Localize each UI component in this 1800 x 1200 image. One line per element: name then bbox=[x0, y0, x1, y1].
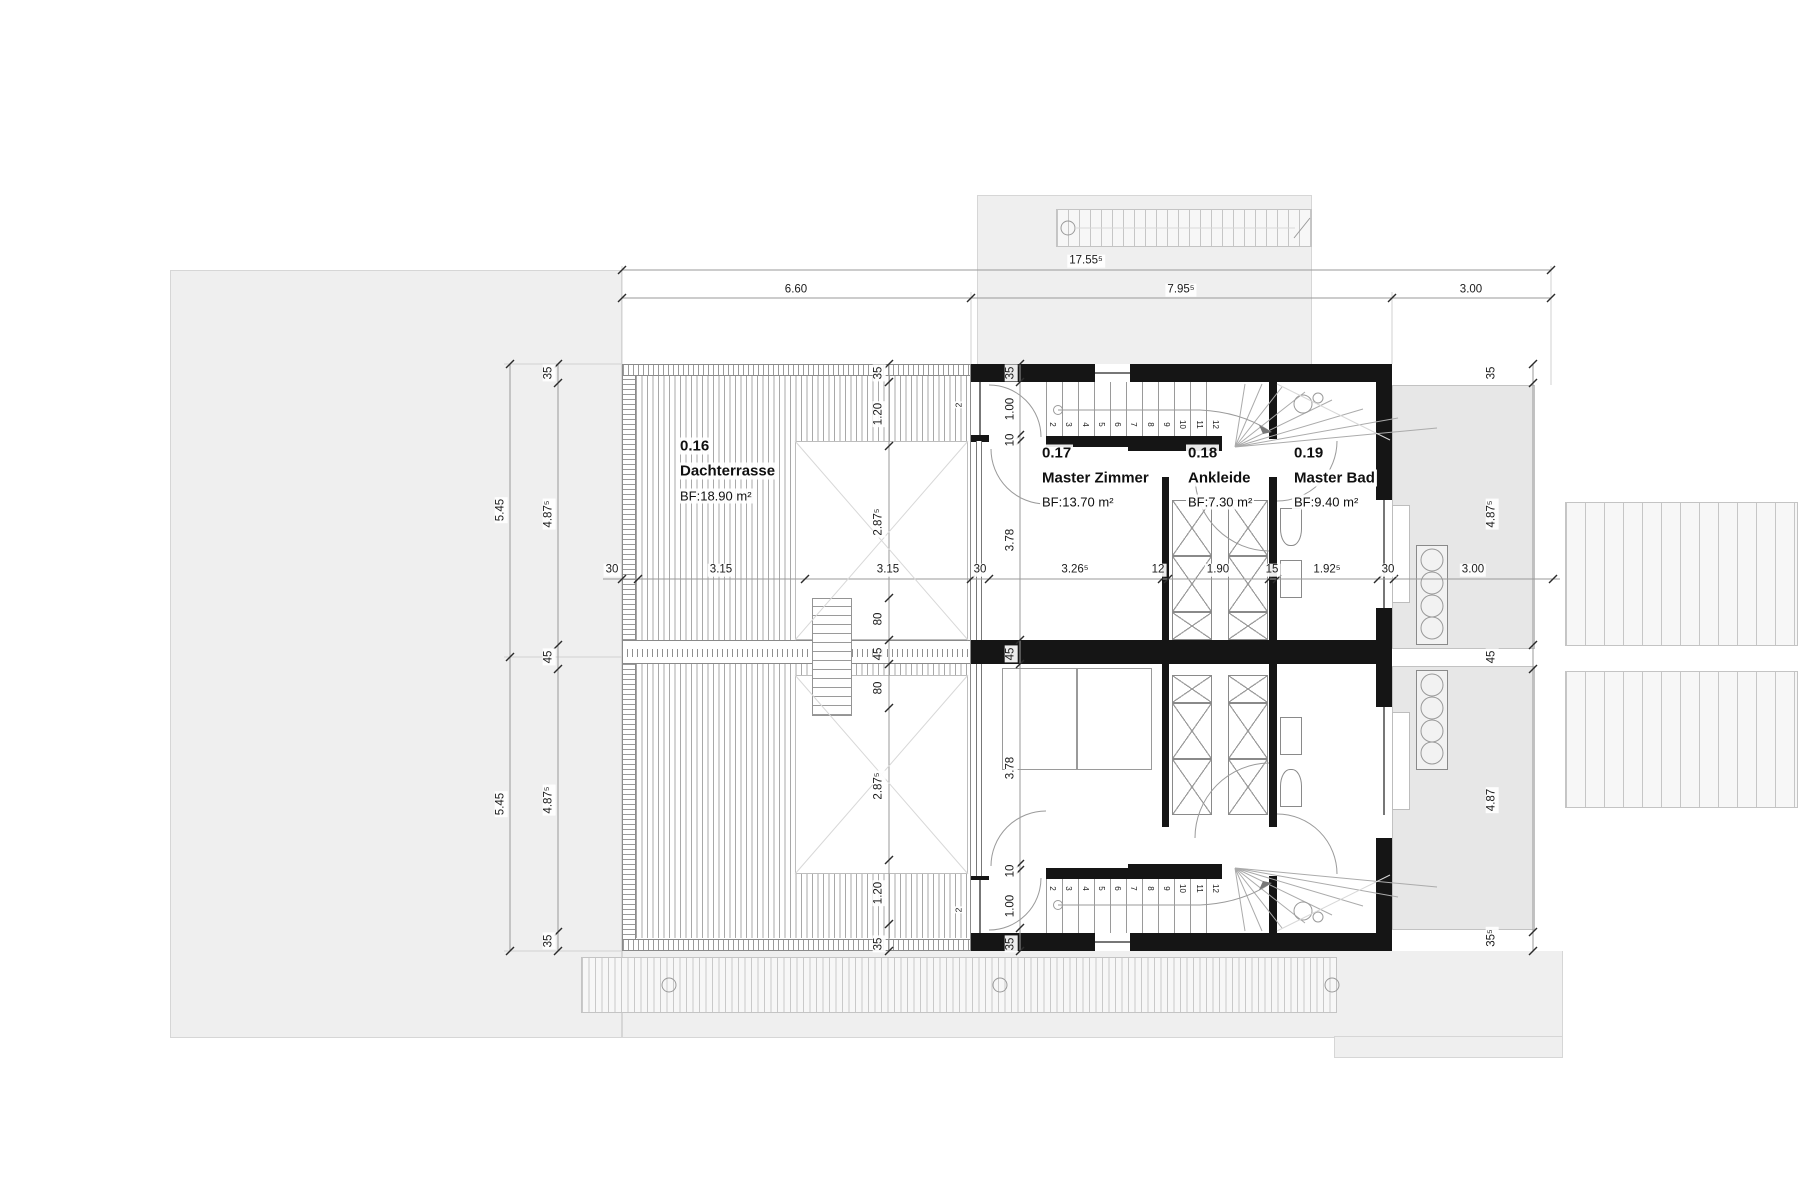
dim-house: 35 bbox=[1005, 365, 1018, 382]
dim-mid: 30 bbox=[1380, 564, 1397, 577]
dim-mid: 3.00 bbox=[1460, 564, 1486, 577]
dim-right: 4.87⁵ bbox=[1486, 498, 1499, 529]
dim-house: 1.00 bbox=[1005, 893, 1018, 919]
floor-plan: 23456789101112 23456789101112 bbox=[0, 0, 1800, 1200]
dim-terrace: 45 bbox=[873, 646, 886, 663]
dim-terrace: 2.87⁵ bbox=[873, 770, 886, 801]
step-mark-upper: 2 bbox=[954, 402, 963, 409]
dim-terrace: 35 bbox=[873, 365, 886, 382]
dim-house: 3.78 bbox=[1005, 527, 1018, 553]
dim-terrace: 35 bbox=[873, 936, 886, 953]
dim-top-balcony: 3.00 bbox=[1458, 284, 1484, 297]
dim-left-outer: 5.45 bbox=[495, 791, 508, 817]
dim-left-inner: 45 bbox=[543, 649, 556, 666]
dim-right: 35⁵ bbox=[1486, 927, 1499, 949]
dim-top-total: 17.55⁵ bbox=[1067, 255, 1105, 268]
dim-house: 3.78 bbox=[1005, 755, 1018, 781]
dim-house: 45 bbox=[1005, 646, 1018, 663]
dim-top-house: 7.95⁵ bbox=[1165, 284, 1196, 297]
room-019-name: Master Bad bbox=[1292, 470, 1377, 487]
dim-mid: 1.92⁵ bbox=[1311, 564, 1342, 577]
dim-mid: 12 bbox=[1150, 564, 1167, 577]
step-mark-lower: 2 bbox=[954, 907, 963, 914]
dim-left-inner: 4.87⁵ bbox=[543, 498, 556, 529]
dim-right: 45 bbox=[1486, 649, 1499, 666]
dim-mid: 3.26⁵ bbox=[1059, 564, 1090, 577]
dim-mid: 1.90 bbox=[1205, 564, 1231, 577]
dim-terrace: 80 bbox=[873, 680, 886, 697]
dim-mid: 15 bbox=[1264, 564, 1281, 577]
dim-right: 35 bbox=[1486, 365, 1499, 382]
dim-house: 1.00 bbox=[1005, 396, 1018, 422]
room-019-area: BF:9.40 m² bbox=[1292, 495, 1360, 510]
dim-house: 10 bbox=[1005, 863, 1018, 880]
room-018-area: BF:7.30 m² bbox=[1186, 495, 1254, 510]
dim-left-inner: 35 bbox=[543, 365, 556, 382]
dim-left-inner: 4.87⁵ bbox=[543, 784, 556, 815]
room-017-id: 0.17 bbox=[1040, 445, 1073, 462]
dim-terrace: 1.20 bbox=[873, 401, 886, 427]
room-018-id: 0.18 bbox=[1186, 445, 1219, 462]
dim-right: 4.87 bbox=[1486, 787, 1499, 813]
room-016-id: 0.16 bbox=[678, 438, 711, 455]
dim-terrace: 2.87⁵ bbox=[873, 506, 886, 537]
dim-terrace: 1.20 bbox=[873, 880, 886, 906]
room-016-area: BF:18.90 m² bbox=[678, 489, 754, 504]
dim-top-terrace: 6.60 bbox=[783, 284, 809, 297]
dim-mid: 3.15 bbox=[875, 564, 901, 577]
dim-terrace: 80 bbox=[873, 611, 886, 628]
dim-mid: 30 bbox=[972, 564, 989, 577]
plan-linework bbox=[0, 0, 1800, 1200]
room-019-id: 0.19 bbox=[1292, 445, 1325, 462]
room-016-name: Dachterrasse bbox=[678, 463, 777, 480]
dim-left-inner: 35 bbox=[543, 933, 556, 950]
dim-house: 35 bbox=[1005, 936, 1018, 953]
dim-mid: 30 bbox=[604, 564, 621, 577]
room-018-name: Ankleide bbox=[1186, 470, 1253, 487]
room-017-name: Master Zimmer bbox=[1040, 470, 1151, 487]
dim-mid: 3.15 bbox=[708, 564, 734, 577]
room-017-area: BF:13.70 m² bbox=[1040, 495, 1116, 510]
dim-house: 10 bbox=[1005, 432, 1018, 449]
dim-left-outer: 5.45 bbox=[495, 497, 508, 523]
